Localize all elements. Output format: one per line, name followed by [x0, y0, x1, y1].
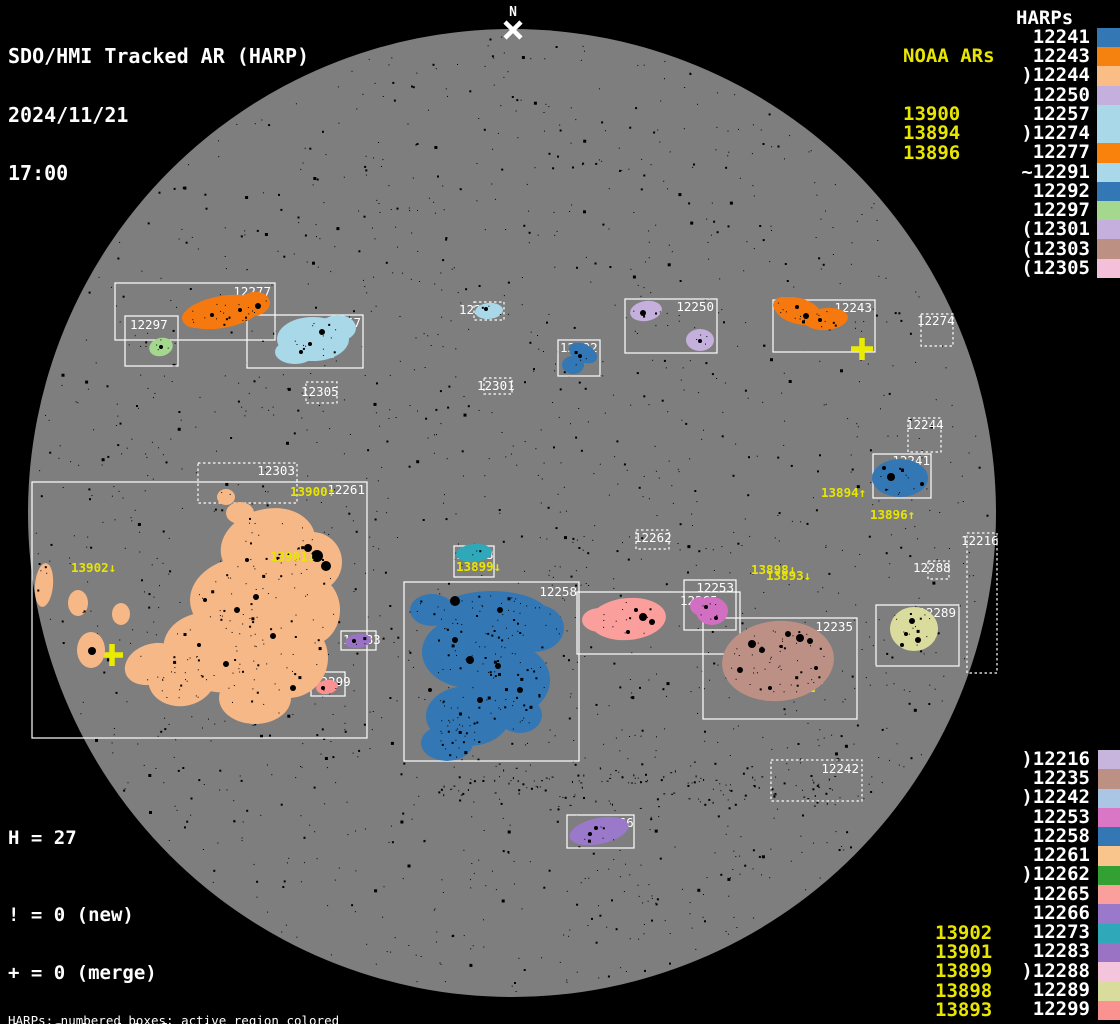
harp-color-swatch [1098, 750, 1120, 769]
harp-box-label-12253: 12253 [696, 580, 734, 595]
harp-color-swatch [1098, 1001, 1120, 1020]
sunspot [909, 618, 915, 624]
active-region-blob [217, 489, 235, 505]
sunspot [484, 307, 488, 311]
harp-box-label-12244: 12244 [906, 417, 944, 432]
harp-box-label-12303: 12303 [257, 463, 295, 478]
title-block: SDO/HMI Tracked AR (HARP) 2024/11/21 17:… [8, 8, 309, 223]
harp-box-label-12305: 12305 [301, 384, 339, 399]
sunspot [887, 473, 895, 481]
noaa-disk-label: 13900↑ [290, 484, 335, 499]
sunspot [639, 613, 647, 621]
harp-color-swatch [1098, 769, 1120, 788]
sunspot [223, 661, 229, 667]
time-label: 17:00 [8, 164, 309, 184]
sunspot [477, 697, 483, 703]
sunspot [321, 561, 331, 571]
active-region-blob [582, 608, 618, 632]
harp-number: 12277 [1004, 143, 1090, 162]
harp-color-swatches-top [1097, 28, 1120, 278]
sunspot [290, 685, 296, 691]
sunspot [255, 303, 261, 309]
harp-color-swatch [1098, 982, 1120, 1001]
harp-number: (12301 [1004, 220, 1090, 239]
sunspot [714, 616, 718, 620]
sunspot [634, 608, 638, 612]
sunspot [795, 305, 799, 309]
harp-color-swatch [1097, 163, 1120, 182]
active-region-blob [504, 604, 564, 652]
harp-color-swatch [1097, 66, 1120, 85]
harp-color-swatch [1098, 827, 1120, 846]
sunspot [197, 643, 201, 647]
noaa-disk-label: 13902↓ [71, 560, 116, 575]
harp-box-label-12301: 12301 [477, 378, 515, 393]
legend-merge: + = 0 (merge) [8, 964, 225, 983]
sunspot [270, 633, 276, 639]
active-region-blob [562, 356, 584, 374]
sunspot [748, 640, 756, 648]
sunspot [640, 310, 646, 316]
harp-color-swatch [1098, 962, 1120, 981]
harp-color-swatch [1098, 846, 1120, 865]
sunspot [900, 643, 904, 647]
sunspot [352, 639, 356, 643]
harp-number: ~12291 [1004, 163, 1090, 182]
sunspot [319, 329, 325, 335]
sunspot [203, 598, 207, 602]
harp-color-swatches-bottom [1098, 750, 1120, 1020]
harp-number: )12242 [1004, 788, 1090, 807]
harp-number: 12283 [1004, 942, 1090, 961]
sunspot [517, 687, 523, 693]
harp-color-swatch [1097, 28, 1120, 47]
harp-number: )12244 [1004, 66, 1090, 85]
noaa-disk-label: 13894↑ [821, 485, 866, 500]
harp-color-swatch [1097, 105, 1120, 124]
date-label: 2024/11/21 [8, 106, 309, 126]
noaa-ar-list-bottom: 1390213901138991389813893 [935, 924, 992, 1020]
noaa-ar-list-top: NOAA ARs 139001389413896 [903, 9, 995, 201]
sunspot [768, 686, 772, 690]
active-region-blob [773, 297, 793, 313]
harp-color-swatch [1097, 239, 1120, 258]
harp-color-swatch [1097, 86, 1120, 105]
harp-color-swatch [1098, 924, 1120, 943]
sunspot [450, 596, 460, 606]
harp-box-label-12274: 12274 [917, 313, 955, 328]
sunspot [814, 666, 818, 670]
noaa-disk-label: 13893↓ [766, 568, 811, 583]
harp-color-swatch [1098, 885, 1120, 904]
sunspot [796, 634, 804, 642]
noaa-ar-number: 13896 [903, 144, 995, 163]
harp-color-swatch [1097, 124, 1120, 143]
harp-tracking-view: 1227712297122571230512291122921225012301… [0, 0, 1120, 1024]
sunspot [785, 631, 791, 637]
harp-count: H = 27 [8, 829, 77, 848]
harp-region-12241 [872, 459, 928, 497]
harp-color-swatch [1098, 808, 1120, 827]
footnote-harps: HARPs: numbered boxes; active region col… [8, 1015, 445, 1024]
harp-number: 12265 [1004, 885, 1090, 904]
harp-color-swatch [1098, 904, 1120, 923]
noaa-ar-number: 13899 [935, 962, 992, 981]
harp-color-swatch [1098, 789, 1120, 808]
harp-box-label-12250: 12250 [676, 299, 714, 314]
harp-box-label-12216: 12216 [961, 533, 999, 548]
active-region-blob [421, 725, 473, 761]
noaa-ar-number: 13894 [903, 124, 995, 143]
sunspot [807, 638, 813, 644]
active-region-blob [182, 308, 210, 328]
active-region-blob [226, 502, 254, 524]
sunspot [299, 350, 303, 354]
sunspot [594, 826, 598, 830]
noaa-ars-header: NOAA ARs [903, 47, 995, 66]
harp-box-label-12288: 12288 [913, 560, 951, 575]
active-region-blob [410, 594, 454, 626]
harp-box-label-12242: 12242 [821, 761, 859, 776]
noaa-disk-label: 13896↑ [870, 507, 915, 522]
sunspot [759, 647, 765, 653]
sunspot [915, 637, 921, 643]
harp-color-swatch [1097, 201, 1120, 220]
sunspot [245, 558, 249, 562]
sunspot [452, 637, 458, 643]
harp-box-label-12262: 12262 [634, 530, 672, 545]
sunspot [649, 619, 655, 625]
harp-number: )12262 [1004, 865, 1090, 884]
harp-list-bottom: )12216 12235)12242 12253 12258 12261)122… [1004, 750, 1090, 1019]
sunspot [704, 605, 708, 609]
harp-region-12289 [890, 607, 938, 651]
app-title: SDO/HMI Tracked AR (HARP) [8, 47, 309, 67]
active-region-blob [112, 603, 130, 625]
legend-new: ! = 0 (new) [8, 906, 225, 925]
sunspot [920, 482, 924, 486]
harp-color-swatch [1097, 182, 1120, 201]
harp-number: (12305 [1004, 259, 1090, 278]
harp-number: )12288 [1004, 962, 1090, 981]
harp-region-12303 [217, 489, 235, 505]
active-region-blob [498, 697, 542, 733]
harp-number: 12299 [1004, 1000, 1090, 1019]
sunspot [882, 466, 886, 470]
active-region-blob [280, 575, 340, 645]
noaa-disk-label: 13901↓ [270, 549, 315, 564]
noaa-ar-rows: 139001389413896 [903, 105, 995, 163]
sunspot [495, 663, 501, 669]
active-region-blob [890, 607, 938, 651]
sunspot [466, 656, 474, 664]
active-region-blob [219, 672, 291, 724]
sunspot [497, 607, 503, 613]
noaa-disk-label: 13899↓ [456, 559, 501, 574]
active-region-blob [320, 315, 356, 341]
harp-color-swatch [1097, 259, 1120, 278]
sunspot [234, 607, 240, 613]
sunspot [578, 354, 582, 358]
harp-color-swatch [1097, 220, 1120, 239]
harp-color-swatch [1098, 866, 1120, 885]
noaa-ar-number: 13893 [935, 1001, 992, 1020]
harp-box-label-12258: 12258 [539, 584, 577, 599]
sunspot [698, 339, 702, 343]
harp-color-swatch [1098, 943, 1120, 962]
sunspot [88, 647, 96, 655]
harp-number: (12303 [1004, 240, 1090, 259]
sunspot [308, 342, 312, 346]
sunspot [626, 630, 630, 634]
north-label: N [509, 5, 517, 20]
harp-box-label-12297: 12297 [130, 317, 168, 332]
footnote-block: HARPs: numbered boxes; active region col… [8, 991, 445, 1024]
sunspot [321, 686, 325, 690]
sunspot [737, 667, 743, 673]
sunspot [210, 313, 214, 317]
sunspot [803, 313, 809, 319]
harp-color-swatch [1097, 47, 1120, 66]
harp-box-label-12235: 12235 [815, 619, 853, 634]
sunspot [428, 688, 432, 692]
sunspot [818, 318, 822, 322]
harp-list-top: 12241 12243)12244 12250 12257)12274 1227… [1004, 28, 1090, 278]
sunspot [159, 345, 163, 349]
sunspot [904, 632, 908, 636]
active-region-blob [872, 459, 928, 497]
harp-color-swatch [1097, 143, 1120, 162]
sunspot [238, 308, 242, 312]
sunspot [253, 594, 259, 600]
sunspot [588, 832, 592, 836]
